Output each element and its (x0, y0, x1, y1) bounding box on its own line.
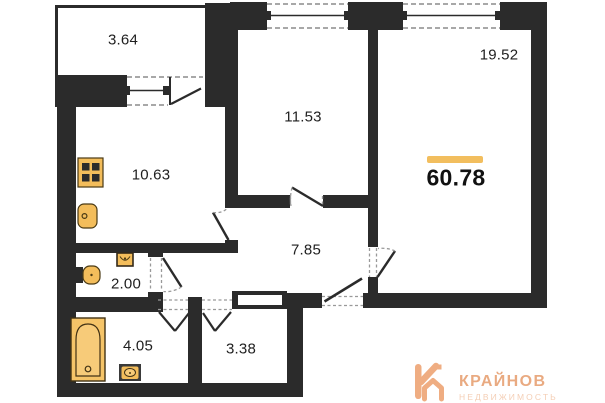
total-area-accent-bar (427, 156, 483, 163)
window-bedroom (264, 4, 351, 28)
door-swing (215, 312, 231, 331)
door-swing (292, 188, 323, 207)
toilet-icon (76, 266, 100, 284)
kitchen-sink-icon (78, 204, 97, 228)
wc-area-label: 2.00 (111, 276, 141, 293)
living-door (370, 248, 396, 277)
kitchen-door (213, 209, 229, 241)
living-area-label: 19.52 (480, 47, 519, 64)
window-kitchen (124, 77, 203, 105)
kitchen-area-label: 10.63 (132, 167, 171, 184)
wc-sink-icon (117, 253, 133, 266)
total-area-label: 60.78 (426, 165, 485, 192)
logo-title: КРАЙНОВ (459, 374, 558, 390)
door-swing (159, 312, 175, 331)
door-swing (213, 213, 229, 241)
storage-area-label: 3.38 (226, 341, 256, 358)
bathroom-door (158, 300, 189, 331)
bathroom-area-label: 4.05 (123, 338, 153, 355)
logo-subtitle: НЕДВИЖИМОСТЬ (459, 393, 558, 402)
balcony-door (170, 77, 201, 105)
bath-sink-icon (119, 364, 141, 381)
stove-icon (78, 158, 103, 187)
logo: КРАЙНОВ НЕДВИЖИМОСТЬ (412, 360, 558, 402)
door-swing (378, 251, 396, 277)
door-swing (163, 258, 182, 287)
balcony-area-label: 3.64 (108, 32, 138, 49)
bedroom-door (290, 188, 323, 208)
bedroom-area-label: 11.53 (284, 109, 321, 126)
wc-door (151, 258, 182, 292)
storage-door (202, 300, 232, 331)
entry-door (322, 279, 363, 306)
floorplan-canvas: 3.64 11.53 19.52 10.63 7.85 2.00 4.05 3.… (0, 0, 605, 403)
door-swing (325, 279, 363, 302)
bathtub-icon (71, 318, 105, 381)
window-living (400, 4, 502, 28)
logo-k-house-icon (412, 360, 450, 402)
door-swing (171, 89, 201, 105)
hallway-area-label: 7.85 (291, 242, 321, 259)
